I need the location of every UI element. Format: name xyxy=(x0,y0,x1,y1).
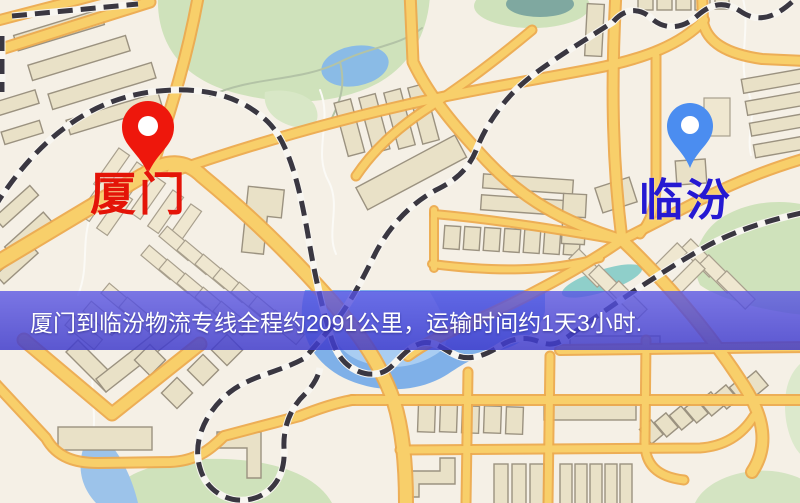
map-canvas xyxy=(0,0,800,503)
map[interactable]: 厦门到临汾物流专线全程约2091公里，运输时间约1天3小时. 厦门 临汾 xyxy=(0,0,800,503)
origin-city-label: 厦门 xyxy=(90,172,188,218)
route-banner: 厦门到临汾物流专线全程约2091公里，运输时间约1天3小时. xyxy=(0,291,800,350)
route-summary-text: 厦门到临汾物流专线全程约2091公里，运输时间约1天3小时. xyxy=(0,304,642,338)
destination-city-label: 临汾 xyxy=(639,179,733,223)
